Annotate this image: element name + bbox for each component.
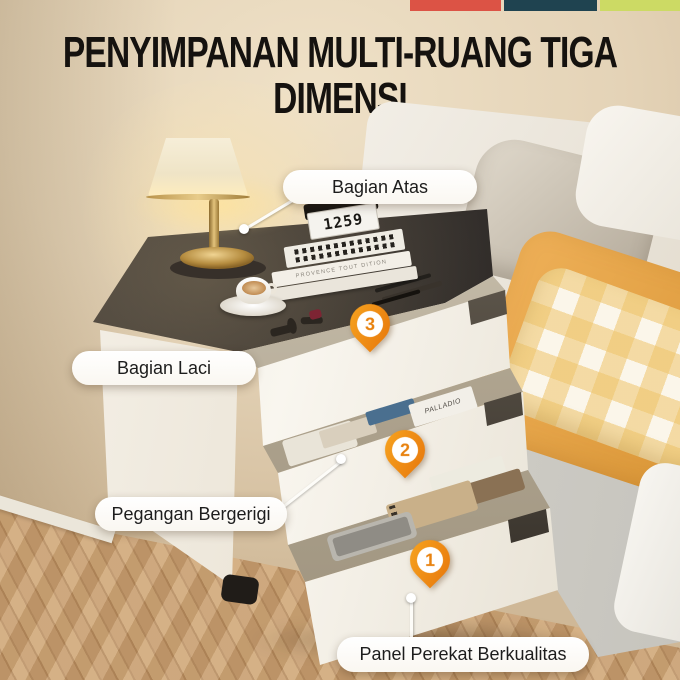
header-color-bar-green (600, 0, 680, 11)
pin-number: 2 (385, 430, 425, 470)
flip-clock-time: 1259 (322, 209, 364, 233)
callout-bagian-laci: Bagian Laci (72, 351, 256, 385)
callout-bagian-atas: Bagian Atas (283, 170, 477, 204)
location-pin-icon-1: 1 (402, 532, 459, 589)
leader-dot (239, 224, 249, 234)
callout-pegangan-bergerigi: Pegangan Bergerigi (95, 497, 287, 531)
leader-line-panel (410, 600, 413, 638)
header-color-bar-red (410, 0, 501, 11)
callout-panel-perekat: Panel Perekat Berkualitas (337, 637, 589, 672)
location-pin-icon-3: 3 (342, 296, 399, 353)
pin-number: 3 (350, 304, 390, 344)
location-pin-icon-2: 2 (377, 422, 434, 479)
lamp-gold-base (180, 247, 254, 269)
palladio-book-text: PALLADIO (424, 398, 462, 416)
header-color-bar-teal (504, 0, 597, 11)
leader-dot (406, 593, 416, 603)
cabinet-caster-foot (220, 574, 259, 606)
lamp-gold-stem (209, 199, 219, 253)
lamp-gold-rim (146, 194, 250, 200)
leader-dot (336, 454, 346, 464)
page-title: PENYIMPANAN MULTI-RUANG TIGA DIMENSI (48, 30, 633, 123)
page-title-line1: PENYIMPANAN MULTI-RUANG TIGA (63, 29, 617, 77)
pin-number: 1 (410, 540, 450, 580)
product-infographic: PENYIMPANAN MULTI-RUANG TIGA DIMENSI PAL… (0, 0, 680, 680)
latte-foam (242, 281, 266, 295)
